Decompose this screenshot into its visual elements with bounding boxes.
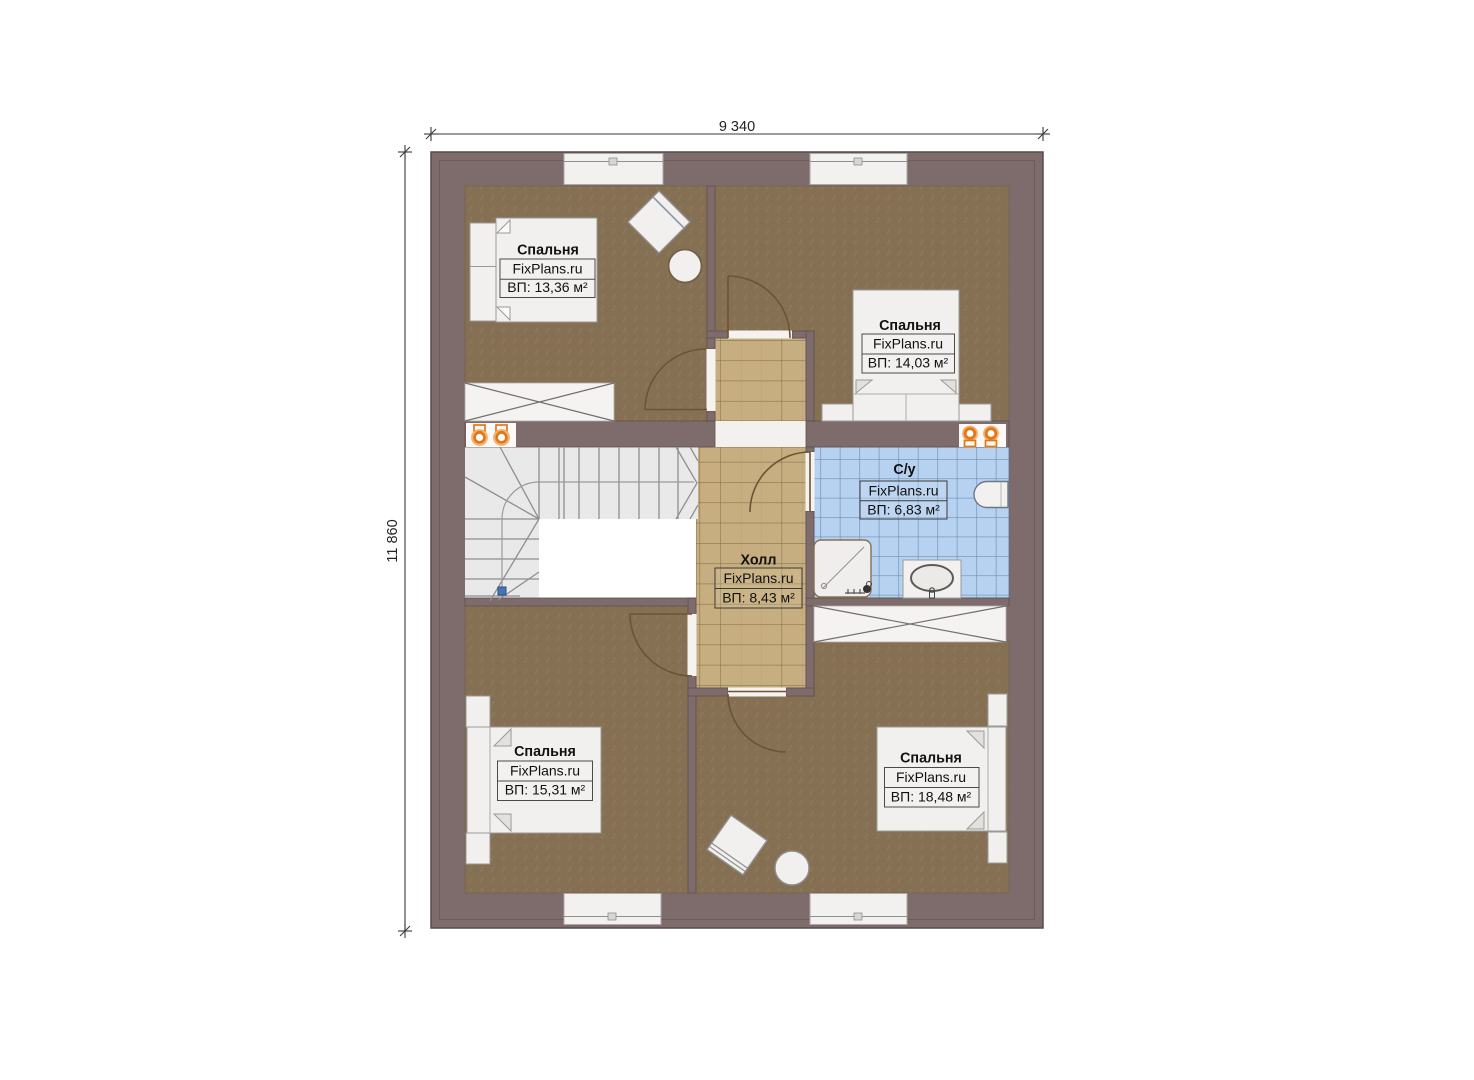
svg-text:Холл: Холл <box>741 553 777 569</box>
svg-text:FixPlans.ru: FixPlans.ru <box>723 570 793 586</box>
svg-text:9 340: 9 340 <box>719 119 755 135</box>
svg-text:ВП: 15,31 м²: ВП: 15,31 м² <box>505 782 586 798</box>
svg-text:Спальня: Спальня <box>517 243 579 259</box>
svg-text:Спальня: Спальня <box>514 744 576 760</box>
svg-text:FixPlans.ru: FixPlans.ru <box>510 763 580 779</box>
svg-text:FixPlans.ru: FixPlans.ru <box>896 769 966 785</box>
svg-text:Спальня: Спальня <box>879 318 941 334</box>
svg-text:ВП: 6,83 м²: ВП: 6,83 м² <box>867 502 940 518</box>
svg-text:11 860: 11 860 <box>385 519 401 562</box>
svg-text:ВП: 18,48 м²: ВП: 18,48 м² <box>891 789 972 805</box>
svg-text:ВП: 14,03 м²: ВП: 14,03 м² <box>868 355 949 371</box>
svg-text:FixPlans.ru: FixPlans.ru <box>873 336 943 352</box>
svg-text:Спальня: Спальня <box>900 751 962 767</box>
svg-text:FixPlans.ru: FixPlans.ru <box>512 261 582 277</box>
svg-text:ВП: 8,43 м²: ВП: 8,43 м² <box>722 590 795 606</box>
svg-text:FixPlans.ru: FixPlans.ru <box>868 483 938 499</box>
svg-text:ВП: 13,36 м²: ВП: 13,36 м² <box>507 279 588 295</box>
svg-text:С/у: С/у <box>893 462 915 478</box>
